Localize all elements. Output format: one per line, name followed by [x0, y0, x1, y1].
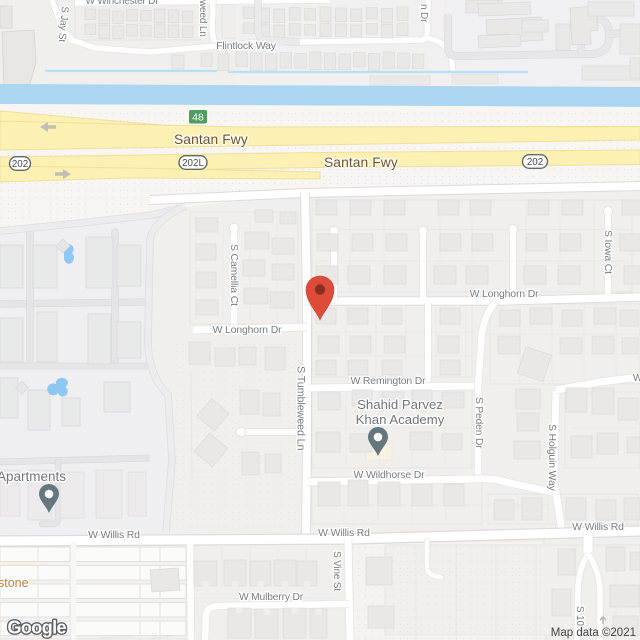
svg-text:stone: stone — [0, 576, 29, 590]
svg-text:W Willis Rd: W Willis Rd — [572, 522, 624, 533]
svg-text:W Willis Rd: W Willis Rd — [318, 528, 370, 539]
svg-text:48: 48 — [192, 112, 204, 124]
svg-text:S 10: S 10 — [574, 606, 585, 627]
svg-text:W Remington Dr: W Remington Dr — [350, 376, 426, 387]
svg-text:n Dr: n Dr — [418, 4, 429, 23]
svg-text:Apartments: Apartments — [0, 469, 66, 484]
svg-text:W: W — [633, 373, 640, 384]
svg-text:Shahid Parvez: Shahid Parvez — [357, 397, 443, 412]
svg-text:Santan Fwy: Santan Fwy — [174, 132, 248, 147]
svg-text:Khan Academy: Khan Academy — [356, 412, 445, 427]
svg-text:Google: Google — [8, 618, 67, 638]
svg-text:S Tumbleweed Ln: S Tumbleweed Ln — [295, 366, 307, 451]
svg-text:202L: 202L — [182, 158, 204, 169]
svg-text:S Vine St: S Vine St — [331, 551, 342, 591]
svg-text:S Holguin Way: S Holguin Way — [546, 424, 557, 492]
svg-text:S Iowa Ct: S Iowa Ct — [602, 230, 613, 274]
svg-text:W Longhorn Dr: W Longhorn Dr — [213, 325, 282, 336]
svg-text:W Wildhorse Dr: W Wildhorse Dr — [354, 470, 426, 481]
svg-text:202: 202 — [527, 157, 543, 168]
svg-text:Map data ©2021: Map data ©2021 — [551, 627, 636, 639]
svg-text:W Winchester Dr: W Winchester Dr — [85, 0, 159, 7]
svg-text:W Willis Rd: W Willis Rd — [88, 530, 140, 541]
svg-text:Flintlock Way: Flintlock Way — [216, 41, 277, 52]
svg-text:S Camellia Ct: S Camellia Ct — [228, 244, 239, 306]
svg-text:W Longhorn Dr: W Longhorn Dr — [470, 289, 539, 300]
svg-text:Santan Fwy: Santan Fwy — [324, 155, 398, 170]
svg-text:weed Ln: weed Ln — [197, 0, 208, 37]
svg-text:W Mulberry Dr: W Mulberry Dr — [239, 592, 304, 603]
svg-text:202: 202 — [12, 159, 28, 170]
svg-text:S Peden Dr: S Peden Dr — [473, 397, 484, 449]
